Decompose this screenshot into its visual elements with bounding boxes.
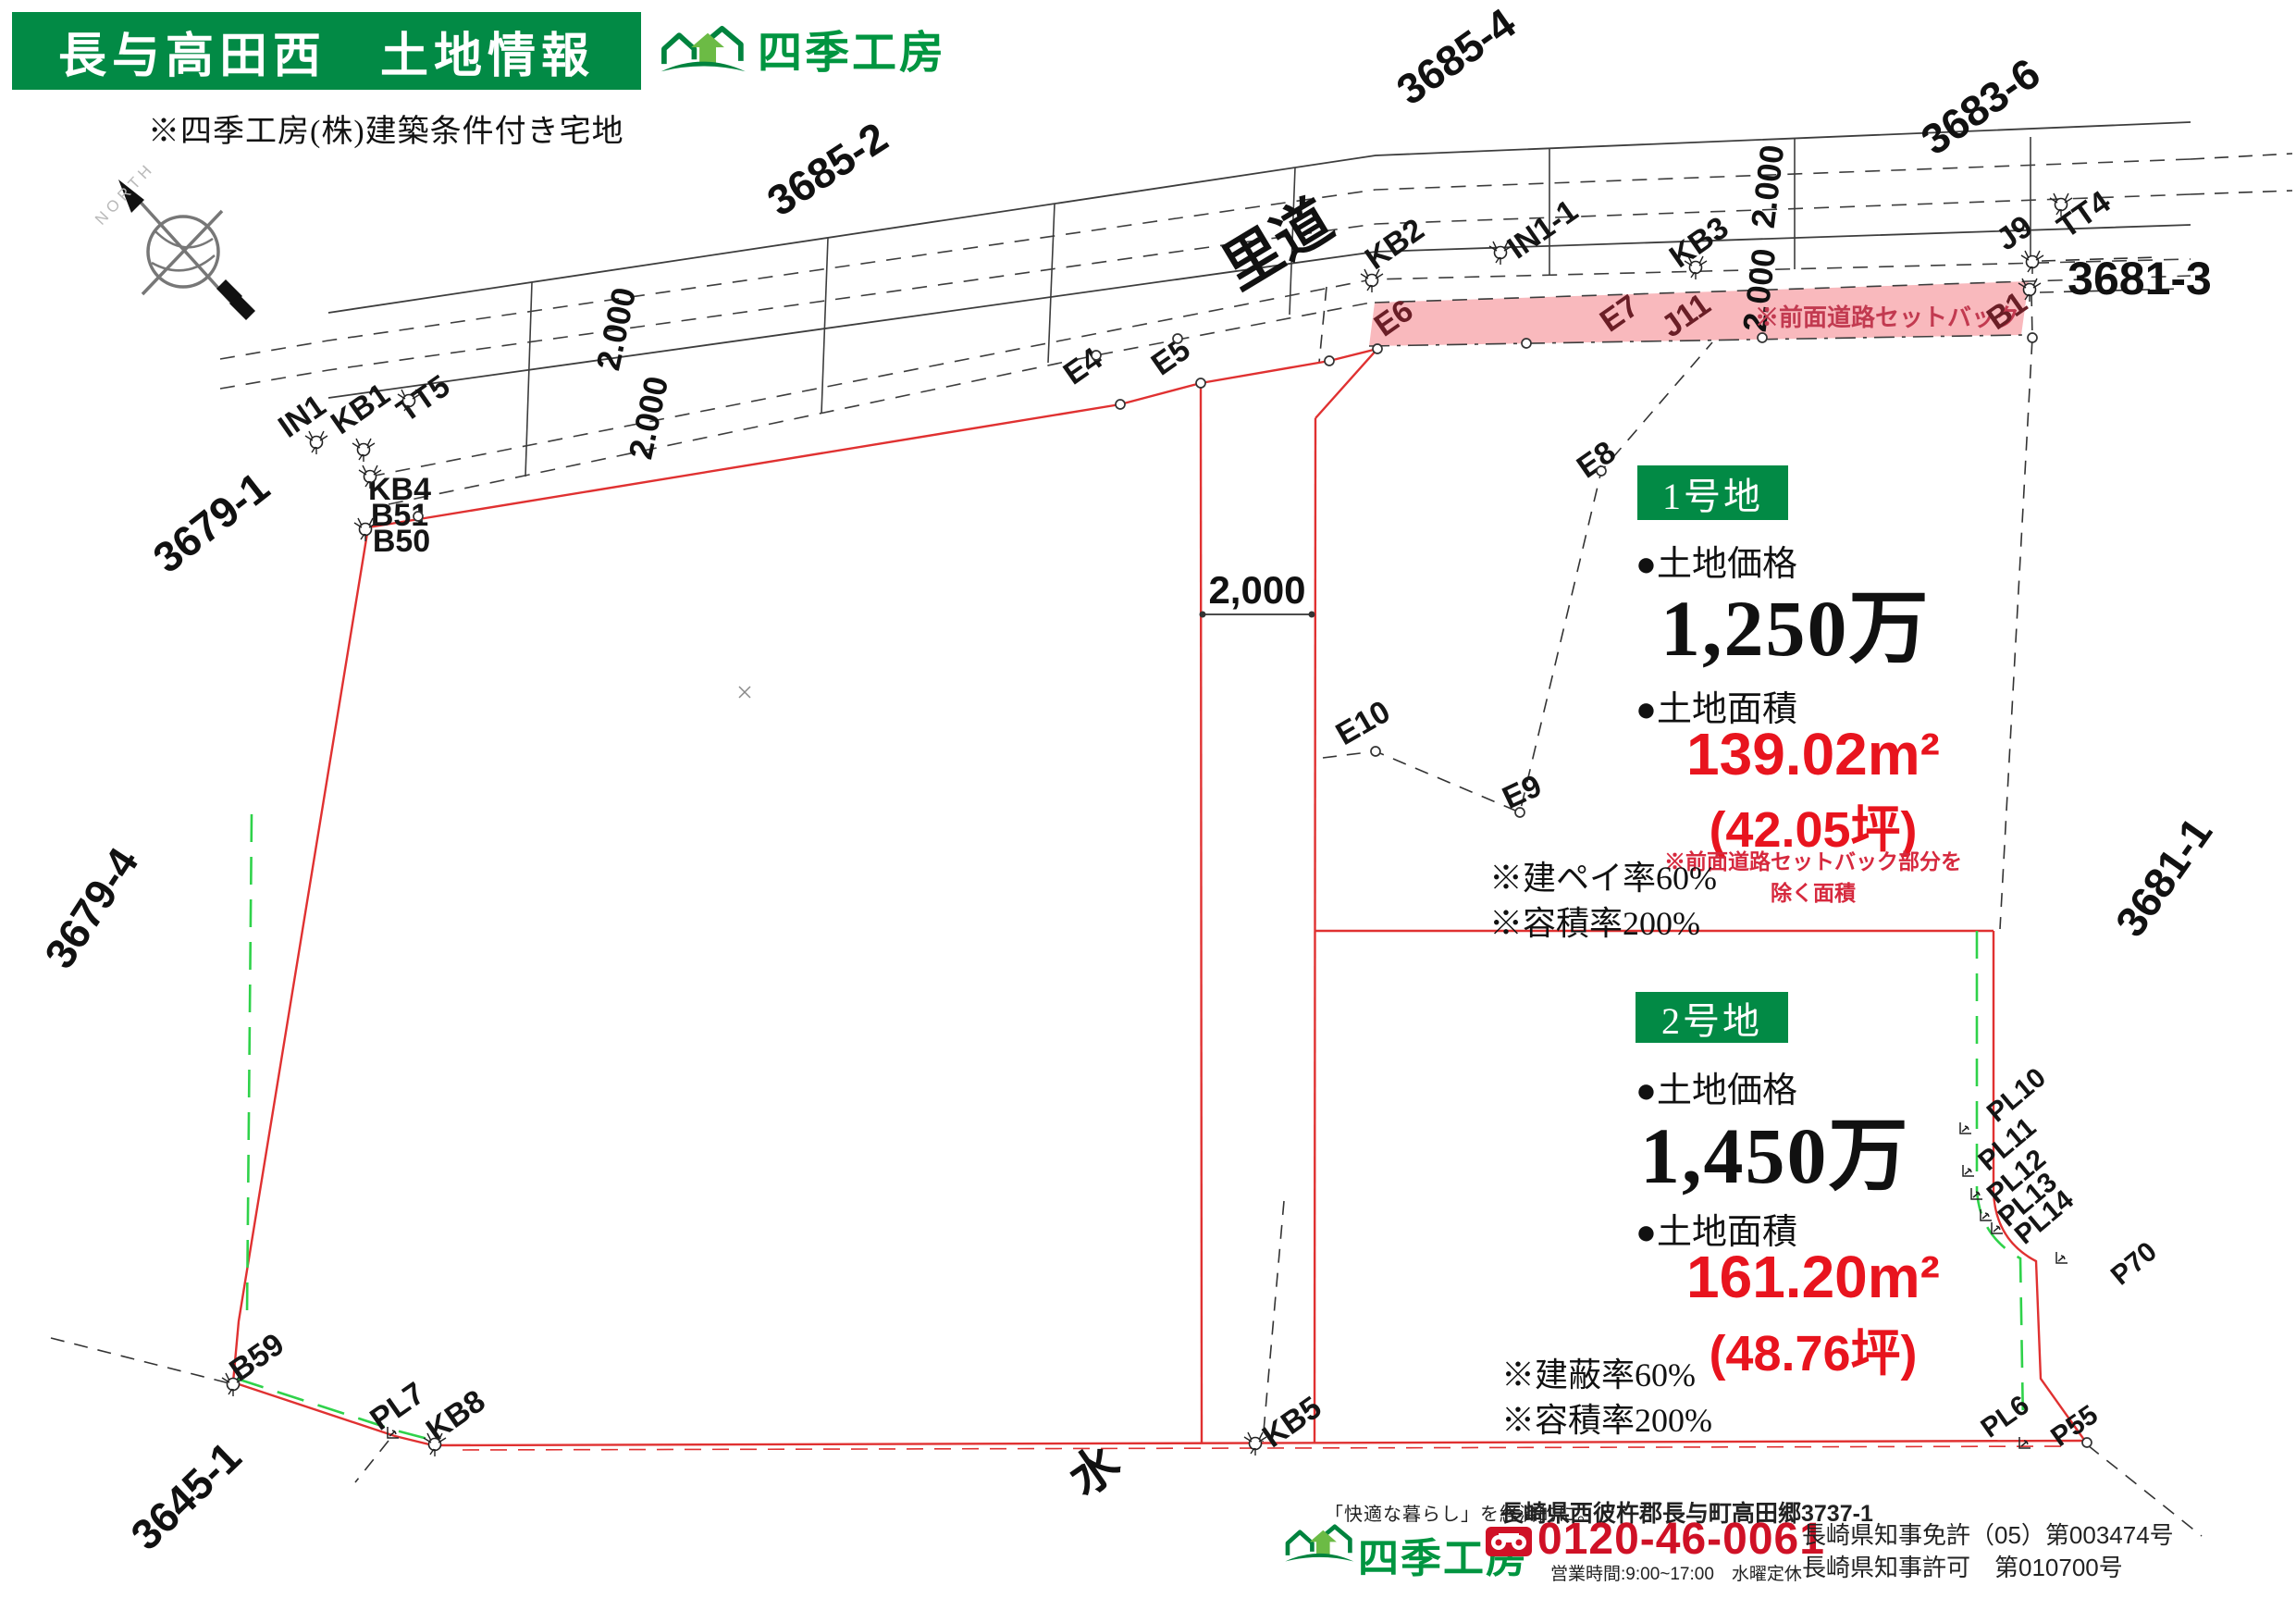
lot2-price: 1,450万 [1640,1090,1910,1206]
lot2-badge-label: 2号地 [1661,991,1762,1045]
lot1-price: 1,250万 [1660,563,1931,678]
lot1-area: 139.02m² [1637,720,1989,788]
lot1-regulations: ※建ペイ率60% ※容積率200% [1489,856,1717,946]
page-title: 長与高田西 土地情報 [58,17,595,86]
parcel-3645-1: 3645-1 [121,1432,250,1559]
dim-horizontal-label: 2,000 [1208,568,1305,612]
lot2-far: ※容積率200% [1501,1398,1712,1443]
footer-phone: 0120-46-0061 [1537,1514,1825,1565]
point-IN1: IN1 [272,388,332,444]
lot2-coverage: ※建蔽率60% [1501,1353,1712,1398]
lot2-regulations: ※建蔽率60% ※容積率200% [1501,1353,1712,1443]
brand-header: 四季工房 [647,6,1017,91]
dim-label-2: 2.000 [1744,142,1792,229]
point-E4: E4 [1057,341,1109,391]
point-KB8: KB8 [420,1383,492,1448]
point-E5: E5 [1145,331,1197,382]
parcel-3683-6: 3683-6 [1912,49,2048,165]
lot1-badge: 1号地 [1637,465,1788,520]
point-IN1-1: IN1-1 [1501,193,1585,266]
lot1-area-unit: m² [1868,721,1940,787]
parcel-3685-2: 3685-2 [759,113,895,226]
point-E8: E8 [1571,434,1623,485]
dim-label-0: 2.000 [588,284,643,374]
point-B50: B50 [373,524,430,559]
lot1-far: ※容積率200% [1489,901,1717,947]
page-title-banner: 長与高田西 土地情報 [12,12,641,90]
parcel-3685-4: 3685-4 [1388,0,1524,114]
point-KB2: KB2 [1359,212,1431,277]
footer-license-2: 長崎県知事許可 第010700号 [1802,1552,2174,1584]
point-PL6: PL6 [1976,1390,2035,1444]
point-TT5: TT5 [390,368,456,429]
point-J9: J9 [1990,209,2039,258]
lot1-area-value: 139.02 [1686,721,1868,787]
road-label: 里道 [1213,188,1344,302]
brand-name: 四季工房 [758,16,946,81]
footer-license-1: 長崎県知事免許（05）第003474号 [1802,1519,2174,1552]
lot1-coverage: ※建ペイ率60% [1489,856,1717,901]
freedial-icon [1486,1527,1532,1556]
point-P55: P55 [2045,1399,2104,1453]
lot2-area-unit: m² [1868,1244,1940,1310]
header-note: ※四季工房(株)建築条件付き宅地 [148,105,624,151]
footer-hours: 営業時間:9:00~17:00 水曜定休 [1550,1560,1802,1585]
lot2-area-value: 161.20 [1686,1244,1868,1310]
dimension-2000: 2,000 [1200,568,1315,618]
footer-house-icon [1284,1514,1356,1571]
point-E10: E10 [1330,694,1396,752]
point-KB1: KB1 [325,377,397,441]
dim-label-1: 2.000 [621,373,675,463]
footer-licenses: 長崎県知事免許（05）第003474号 長崎県知事許可 第010700号 [1802,1519,2174,1584]
water-label: 水 [1059,1435,1130,1507]
cross-mark [739,687,750,698]
parcel-3679-1: 3679-1 [144,463,278,582]
lot2-badge: 2号地 [1636,992,1788,1043]
lot1-badge-label: 1号地 [1662,466,1763,520]
parcel-3681-3: 3681-3 [2068,253,2212,304]
brand-house-icon [660,14,748,82]
lot2-area: 161.20m² [1637,1243,1989,1311]
parcel-3681-1: 3681-1 [2106,809,2222,945]
parcel-3679-4: 3679-4 [35,839,148,977]
compass-north-label: NORTH [92,159,158,229]
north-compass: NORTH [92,159,255,320]
land-info-flyer: 2,000 2.000 2.000 2.000 2.000 里道 水 ※前面道路… [0,0,2296,1598]
point-P70: P70 [2105,1236,2163,1292]
